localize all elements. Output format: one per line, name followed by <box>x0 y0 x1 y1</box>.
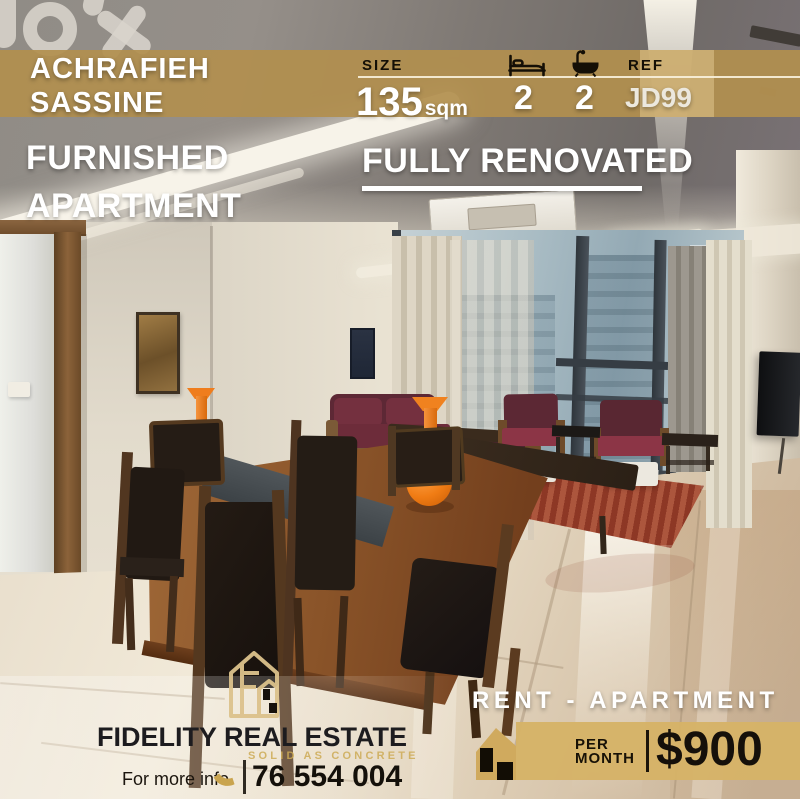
agency-name: FIDELITY REAL ESTATE <box>97 722 407 753</box>
agency-block: FIDELITY REAL ESTATE SOLID AS CONCRETE F… <box>0 0 800 799</box>
real-estate-ad: ACHRAFIEH SASSINE SIZE 135 sqm 2 2 REF J… <box>0 0 800 799</box>
contact-divider <box>243 760 246 794</box>
phone-icon <box>210 764 240 790</box>
phone-number: 76 554 004 <box>252 760 402 794</box>
house-outline-icon <box>226 648 282 722</box>
